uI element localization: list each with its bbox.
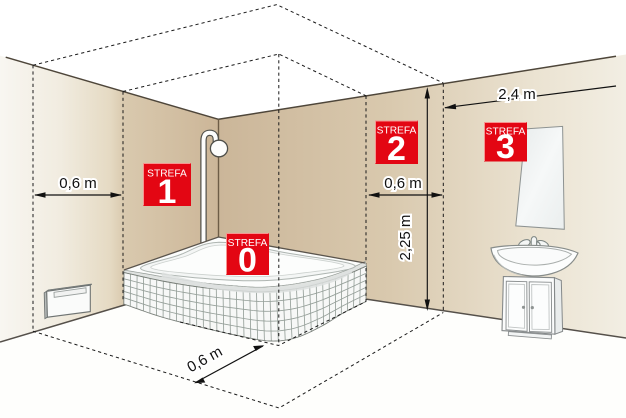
svg-text:0,6 m: 0,6 m — [384, 175, 422, 192]
svg-text:0: 0 — [238, 242, 257, 280]
svg-text:2,4 m: 2,4 m — [498, 86, 536, 103]
svg-text:0,6 m: 0,6 m — [59, 175, 97, 192]
svg-text:3: 3 — [496, 128, 515, 166]
svg-text:1: 1 — [158, 173, 177, 211]
svg-text:2: 2 — [387, 130, 406, 168]
svg-text:2,25 m: 2,25 m — [397, 215, 414, 261]
